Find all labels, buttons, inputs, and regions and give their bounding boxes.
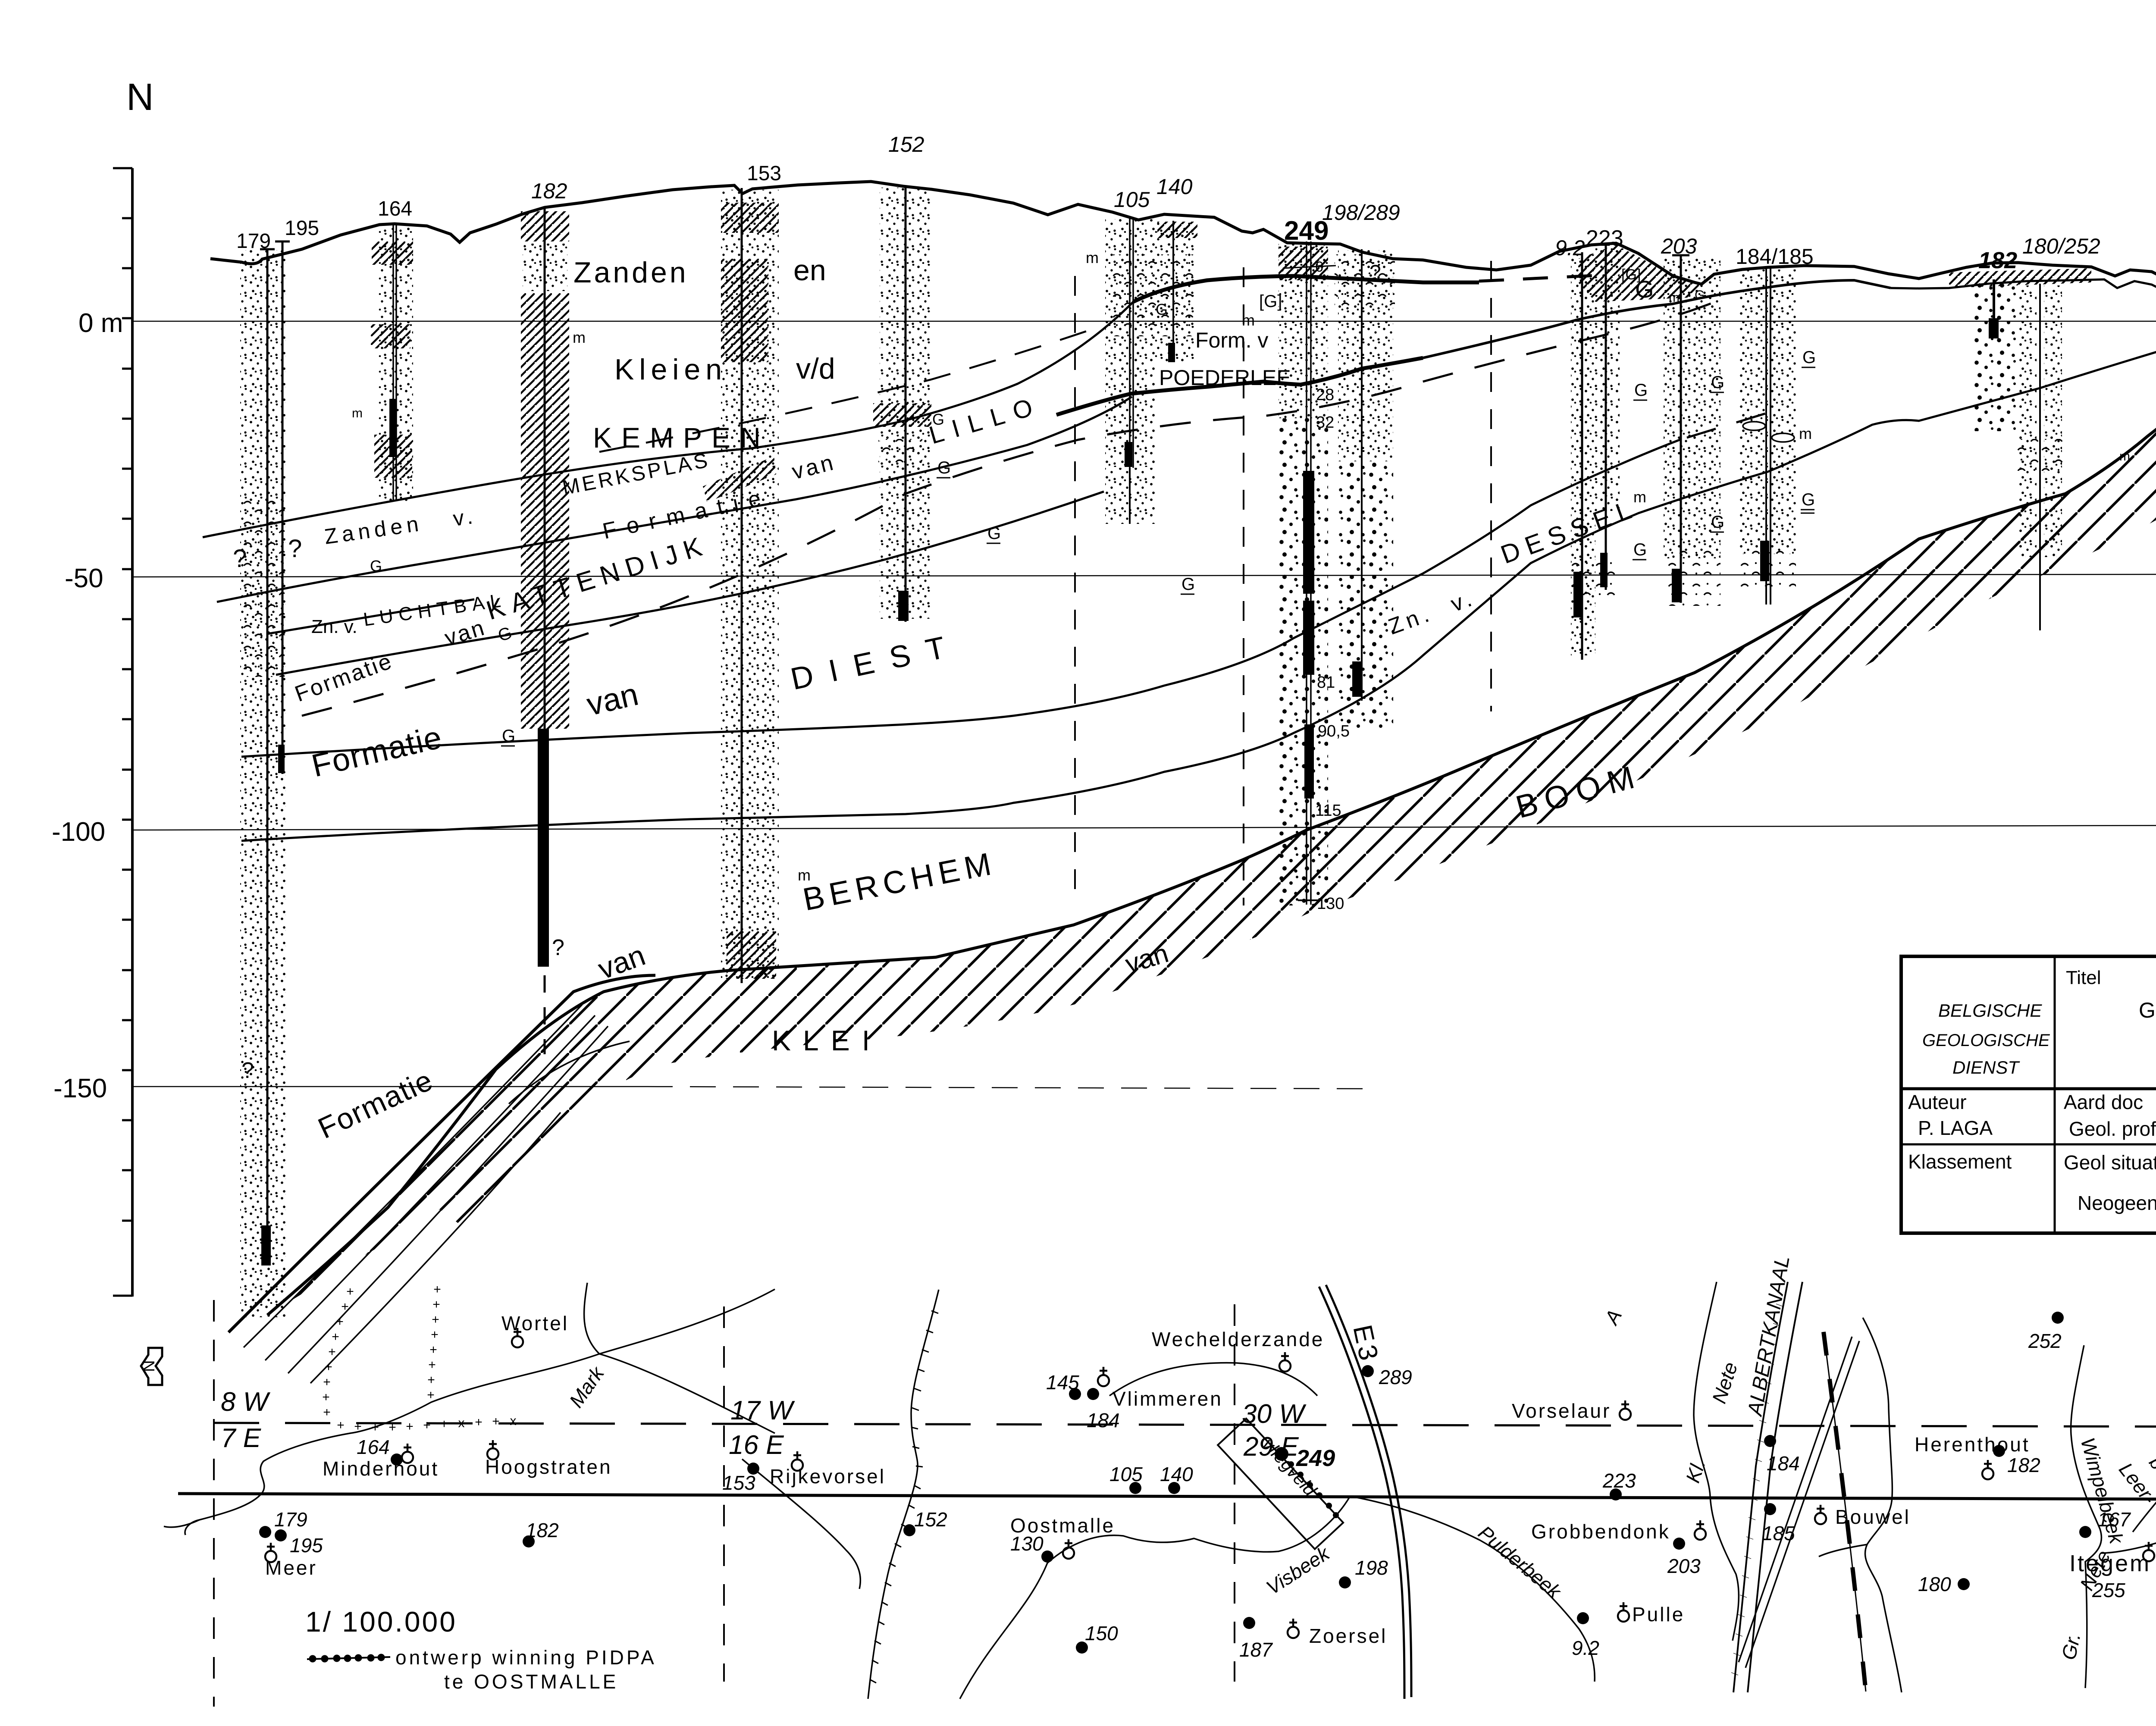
svg-text:Klassement: Klassement [1908,1150,2012,1173]
svg-text:8 W: 8 W [221,1387,271,1417]
svg-text:Gr.: Gr. [2057,1631,2085,1662]
svg-text:van: van [583,676,642,723]
svg-text:G: G [1635,276,1654,303]
svg-text:Meer: Meer [265,1557,317,1579]
svg-text:+: + [336,1315,344,1329]
svg-text:+: + [432,1313,439,1327]
svg-text:?: ? [288,535,302,563]
svg-text:KLEI: KLEI [772,1024,882,1056]
svg-text:164: 164 [378,197,412,220]
svg-text:van: van [594,939,649,986]
svg-text:G: G [987,524,1001,543]
svg-text:+: + [433,1282,441,1297]
svg-text:198: 198 [1355,1557,1388,1579]
svg-text:150: 150 [1085,1622,1118,1645]
svg-text:?: ? [1369,261,1381,284]
svg-text:Herenthout: Herenthout [1915,1433,2030,1456]
svg-text:x: x [510,1414,517,1428]
svg-text:153: 153 [722,1472,755,1494]
svg-text:ALBERTKANAAL: ALBERTKANAAL [1743,1254,1794,1419]
svg-text:m: m [1799,425,1812,442]
svg-text:Vlimmeren: Vlimmeren [1112,1388,1223,1410]
svg-text:G: G [1711,513,1724,532]
svg-text:+: + [429,1343,437,1357]
svg-text:+: + [323,1405,331,1419]
svg-text:289: 289 [1379,1366,1412,1388]
svg-text:+: + [337,1418,345,1432]
svg-text:Geol situatie :: Geol situatie : [2064,1151,2156,1174]
svg-text:+: + [323,1375,331,1389]
svg-text:m: m [1242,311,1255,329]
svg-text:?: ? [241,1058,254,1083]
svg-text:182: 182 [1978,247,2017,273]
svg-text:+: + [427,1373,435,1387]
svg-text:Neogeen: Neogeen [2078,1192,2156,1214]
svg-text:G: G [1633,540,1647,559]
svg-text:van: van [790,450,838,485]
svg-text:+: + [431,1328,439,1342]
svg-text:G: G [937,458,951,477]
svg-text:DESSEL: DESSEL [1497,493,1642,569]
svg-text:m: m [798,866,811,884]
svg-text:Wechelderzande: Wechelderzande [1152,1328,1324,1350]
svg-text:255: 255 [2092,1579,2125,1601]
svg-text:105: 105 [1114,188,1150,212]
svg-text:G: G [1634,381,1648,400]
svg-text:+: + [427,1388,435,1402]
svg-text:187: 187 [1239,1638,1273,1661]
svg-text:182: 182 [526,1519,559,1541]
svg-text:0 m: 0 m [78,308,123,338]
svg-text:9.2: 9.2 [1572,1637,1599,1659]
svg-text:LUCHTBAL: LUCHTBAL [362,589,508,630]
svg-text:32: 32 [1316,413,1334,432]
svg-text:?: ? [552,935,564,960]
svg-text:184/185: 184/185 [1736,244,1814,269]
svg-text:7 E: 7 E [221,1423,261,1453]
svg-text:E3: E3 [1347,1322,1384,1366]
svg-text:179: 179 [236,230,271,253]
svg-text:Form. v: Form. v [1195,328,1268,352]
svg-text:m: m [1633,488,1646,506]
svg-text:-150: -150 [53,1074,107,1103]
svg-text:G: G [1802,348,1816,367]
svg-text:A: A [1600,1306,1626,1329]
svg-text:182: 182 [531,179,567,203]
svg-text:te OOSTMALLE: te OOSTMALLE [444,1670,618,1693]
svg-text:140: 140 [1160,1463,1193,1485]
svg-text:Zn. v.: Zn. v. [1385,585,1479,640]
svg-text:180/252: 180/252 [2022,234,2100,258]
svg-text:[G]: [G] [1259,292,1282,311]
svg-text:Pulle: Pulle [1632,1603,1685,1626]
svg-text:115: 115 [1315,802,1341,820]
svg-text:BELGISCHE: BELGISCHE [1938,1000,2042,1021]
svg-text:223: 223 [1602,1469,1636,1492]
svg-text:Kleien: Kleien [614,353,727,386]
svg-text:+: + [428,1358,436,1372]
svg-text:KATTENDIJK: KATTENDIJK [483,530,712,626]
svg-text:van: van [442,615,489,651]
svg-text:145: 145 [1046,1371,1079,1394]
svg-text:Wortel: Wortel [501,1312,569,1334]
svg-text:KEMPEN: KEMPEN [593,422,770,454]
svg-text:+: + [492,1414,500,1428]
svg-text:Formatie: Formatie [308,719,446,783]
svg-text:Titel: Titel [2066,967,2101,988]
svg-text:182: 182 [2007,1454,2040,1476]
svg-text:203: 203 [1667,1555,1701,1577]
svg-text:POEDERLEE: POEDERLEE [1159,366,1291,390]
svg-text:Zanden: Zanden [573,256,689,289]
svg-text:195: 195 [285,217,319,240]
svg-text:Zoersel: Zoersel [1309,1625,1387,1647]
svg-text:Grobbendonk: Grobbendonk [1531,1520,1670,1543]
svg-text:180: 180 [1918,1573,1951,1595]
svg-text:179: 179 [274,1508,307,1531]
svg-text:G: G [1156,301,1168,318]
svg-text:+: + [328,1345,336,1359]
svg-text:N: N [126,75,154,118]
svg-text:G: G [370,557,382,575]
svg-text:+: + [322,1390,330,1404]
svg-text:Zn. v.: Zn. v. [311,616,357,637]
svg-text:184: 184 [1767,1452,1800,1475]
svg-text:249: 249 [1296,1445,1335,1471]
svg-text:en: en [793,254,826,287]
svg-text:Vorselaur: Vorselaur [1512,1400,1611,1422]
svg-text:81: 81 [1317,673,1335,692]
svg-text:Aard doc: Aard doc [2064,1091,2143,1113]
svg-text:G: G [1711,373,1724,392]
svg-text:130: 130 [1010,1532,1044,1555]
svg-text:153: 153 [747,162,781,185]
svg-text:GEOLOGISCHE NOORD-ZUID DOORS: GEOLOGISCHE NOORD-ZUID DOORSNEDE [2139,998,2156,1022]
svg-text:Geol. profiel: Geol. profiel [2069,1118,2156,1140]
svg-text:140: 140 [1156,175,1193,199]
svg-text:Bouwel: Bouwel [1835,1506,1911,1528]
svg-text:16 E: 16 E [729,1430,784,1460]
svg-text:252: 252 [2028,1330,2062,1352]
svg-text:+: + [341,1300,349,1314]
svg-text:+: + [440,1417,448,1431]
svg-text:-50: -50 [65,564,103,593]
svg-text:130: 130 [1317,895,1344,913]
svg-text:DIEST: DIEST [788,627,965,697]
svg-text:m: m [1669,291,1680,305]
svg-text:m: m [352,406,363,420]
svg-text:105: 105 [1109,1463,1143,1485]
svg-text:Auteur: Auteur [1908,1091,1967,1113]
svg-text:+: + [475,1415,483,1429]
svg-text:BERCHEM: BERCHEM [800,845,999,918]
svg-text:G: G [1695,288,1705,302]
svg-text:G: G [496,623,514,645]
svg-text:x: x [458,1416,465,1430]
svg-text:ontwerp winning PIDPA: ontwerp winning PIDPA [395,1646,657,1669]
svg-text:184: 184 [1087,1409,1120,1432]
svg-text:6: 6 [1315,259,1323,275]
svg-text:185: 185 [1762,1522,1795,1544]
svg-text:9.2: 9.2 [1555,236,1585,260]
svg-text:17 W: 17 W [730,1396,795,1425]
svg-text:Formatie: Formatie [291,648,396,707]
svg-text:223: 223 [1586,226,1623,251]
svg-text:+: + [346,1284,354,1299]
svg-text:152: 152 [914,1508,947,1531]
svg-text:v/d: v/d [796,352,835,385]
svg-text:-100: -100 [52,817,105,847]
svg-text:N: N [140,1360,158,1372]
svg-text:+: + [332,1330,339,1344]
svg-text:1/ 100.000: 1/ 100.000 [305,1606,457,1638]
svg-text:G: G [932,410,944,428]
svg-text:DIENST: DIENST [1952,1057,2020,1078]
svg-text:+: + [325,1360,332,1374]
svg-text:167: 167 [2097,1508,2131,1531]
svg-text:Formatie: Formatie [313,1064,438,1145]
svg-text:Hoogstraten: Hoogstraten [485,1456,612,1478]
svg-text:+: + [423,1418,431,1432]
svg-text:198/289: 198/289 [1322,200,1400,225]
svg-text:195: 195 [290,1534,323,1557]
svg-text:?: ? [233,545,247,573]
svg-text:152: 152 [888,132,924,157]
svg-text:Rijkevorsel: Rijkevorsel [770,1465,886,1488]
svg-text:MERKSPLAS: MERKSPLAS [561,448,712,499]
svg-text:m: m [573,329,586,346]
svg-text:G: G [1181,575,1195,594]
svg-text:GEOLOGISCHE: GEOLOGISCHE [1922,1031,2050,1050]
svg-text:P. LAGA: P. LAGA [1918,1117,1993,1139]
svg-text:Minderhout: Minderhout [323,1457,439,1480]
svg-text:28: 28 [1316,386,1334,404]
svg-text:203: 203 [1661,234,1697,258]
svg-text:Nete: Nete [1708,1359,1742,1406]
svg-text:+: + [432,1297,440,1312]
svg-text:Kl.: Kl. [1681,1457,1710,1485]
svg-text:+: + [389,1420,396,1435]
svg-text:164: 164 [357,1436,390,1458]
svg-text:Mark: Mark [565,1362,609,1412]
svg-text:m: m [2119,449,2130,464]
svg-text:+: + [406,1419,414,1434]
svg-text:Visbeek: Visbeek [1262,1541,1334,1599]
svg-text:G: G [502,727,515,746]
svg-text:m: m [1086,249,1099,266]
svg-text:G: G [1802,490,1815,509]
